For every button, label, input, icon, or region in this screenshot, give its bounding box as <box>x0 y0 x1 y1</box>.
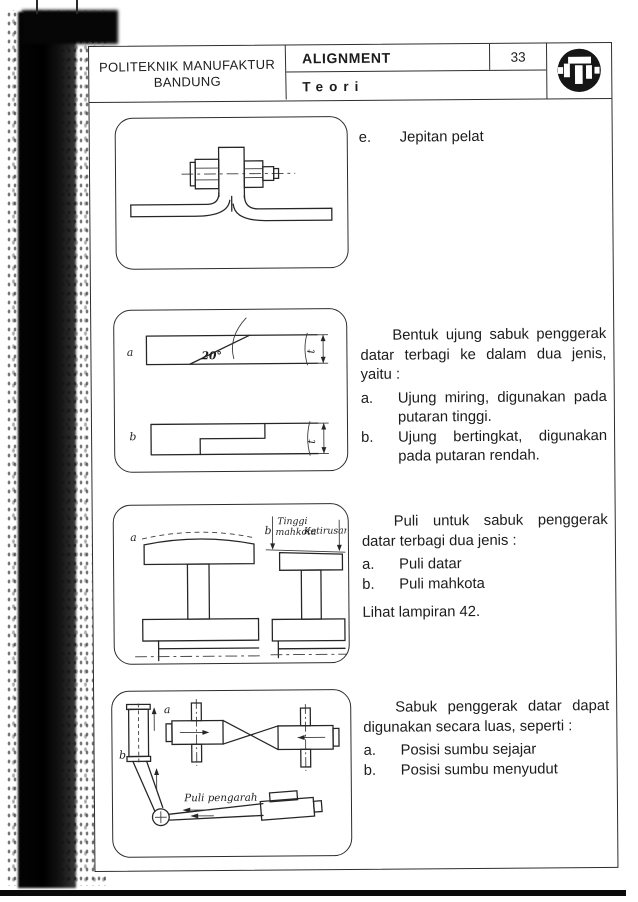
list-item: a. Puli datar <box>362 554 608 575</box>
reference-note: Lihat lampiran 42. <box>362 602 608 623</box>
text-plate-clamp: e. Jepitan pelat <box>359 127 605 148</box>
list-item-label: a. <box>362 556 399 576</box>
paragraph: Sabuk penggerak datar dapat digunakan se… <box>363 697 609 738</box>
list-item-label: b. <box>361 428 398 467</box>
item-label: e. <box>359 129 400 149</box>
page-number: 33 <box>489 43 546 69</box>
scan-edge-tick <box>76 0 78 14</box>
list-item-text: Puli datar <box>399 554 608 575</box>
text-belt-usage: Sabuk penggerak datar dapat digunakan se… <box>363 697 610 781</box>
polman-logo-icon <box>551 44 607 96</box>
list-item: a. Posisi sumbu sejajar <box>363 740 609 761</box>
figure-box-plate-clamp <box>115 116 349 270</box>
guide-pulley-label: Puli pengarah <box>183 792 257 805</box>
pulley-drawing: a b Tinggi mahkota Ketirusan <box>114 504 348 663</box>
list-item-label: a. <box>363 742 400 762</box>
belt-end-angle-label: 20° <box>200 349 222 362</box>
paragraph: Puli untuk sabuk penggerak datar terbagi… <box>362 511 608 552</box>
list-item-label: b. <box>362 575 399 595</box>
paragraph: Bentuk ujung sabuk penggerak datar terba… <box>360 325 606 386</box>
figure-box-belt-usage: a b <box>111 689 352 858</box>
belt-end-drawing: a 20° t b t <box>114 309 346 471</box>
logo-cell <box>546 43 611 99</box>
list-item: b. Ujung bertingkat, digunakan pada puta… <box>361 427 607 468</box>
list-item-text: Posisi sumbu sejajar <box>400 740 609 761</box>
list-item-text: Ujung bertingkat, digunakan pada putaran… <box>398 427 607 468</box>
title-row: ALIGNMENT 33 <box>286 43 546 72</box>
list-item-label: a. <box>361 389 398 428</box>
belt-arrangement-drawing: a b <box>112 690 350 856</box>
list-item: b. Posisi sumbu menyudut <box>364 760 610 781</box>
institution-name-line1: POLITEKNIK MANUFAKTUR <box>99 57 275 76</box>
scanned-document-page: { "header": { "institution_line1": "POLI… <box>0 0 638 902</box>
scan-edge-tick <box>36 0 38 14</box>
belt-thickness-label-b: t <box>305 439 318 444</box>
plate-clamp-drawing <box>116 117 347 268</box>
title-block: POLITEKNIK MANUFAKTUR BANDUNG ALIGNMENT … <box>89 43 611 103</box>
belt-end-b-label: b <box>129 430 136 443</box>
figure-box-pulleys: a b Tinggi mahkota Ketirusan <box>113 503 350 665</box>
figure-box-belt-ends: a 20° t b t <box>113 308 348 473</box>
list-item-text: Ujung miring, digunakan pada putaran tin… <box>398 388 607 429</box>
document-subtitle: Teori <box>286 70 546 100</box>
item-text: Jepitan pelat <box>400 128 484 148</box>
list-item: b. Puli mahkota <box>362 574 608 595</box>
scan-binding-band <box>18 12 76 888</box>
list-item: a. Ujung miring, digunakan pada putaran … <box>361 388 607 429</box>
list-item-text: Posisi sumbu menyudut <box>401 760 610 781</box>
pulley-b-label: b <box>265 524 272 537</box>
belt-thickness-label-a: t <box>304 348 317 353</box>
page-frame: POLITEKNIK MANUFAKTUR BANDUNG ALIGNMENT … <box>88 42 618 872</box>
pulley-a-label: a <box>130 531 137 544</box>
text-pulleys: Puli untuk sabuk penggerak datar terbagi… <box>362 511 609 624</box>
list-item-label: b. <box>364 761 401 781</box>
taper-label: Ketirusan <box>303 525 348 536</box>
institution-name-line2: BANDUNG <box>154 73 221 90</box>
arrangement-a-label: a <box>164 703 171 716</box>
belt-end-a-label: a <box>127 346 134 359</box>
institution-cell: POLITEKNIK MANUFAKTUR BANDUNG <box>89 44 287 103</box>
bottom-scan-rule <box>0 890 626 896</box>
arrangement-b-label: b <box>119 749 126 762</box>
scan-binding-band-top <box>22 10 118 44</box>
list-item-text: Puli mahkota <box>399 574 608 595</box>
text-belt-ends: Bentuk ujung sabuk penggerak datar terba… <box>360 325 607 468</box>
title-cells: ALIGNMENT 33 Teori <box>286 43 546 100</box>
document-title: ALIGNMENT <box>286 44 489 72</box>
